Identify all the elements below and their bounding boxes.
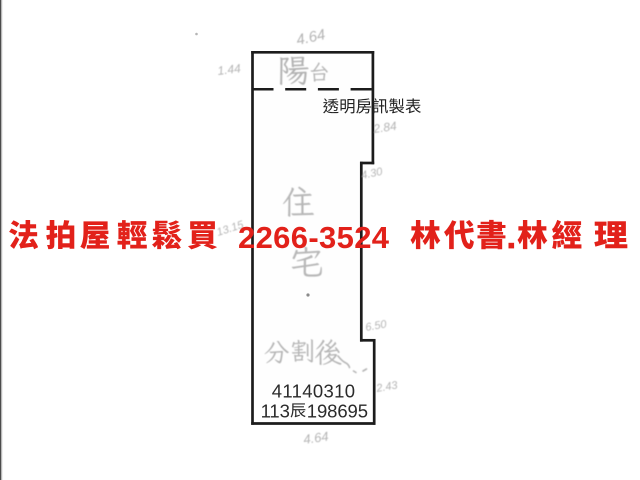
svg-text:198695: 198695 [307,401,368,422]
svg-text:113: 113 [261,401,290,422]
svg-text:1.44: 1.44 [217,61,242,78]
svg-text:41140310: 41140310 [272,380,356,401]
svg-text:2266-3524: 2266-3524 [238,220,390,255]
